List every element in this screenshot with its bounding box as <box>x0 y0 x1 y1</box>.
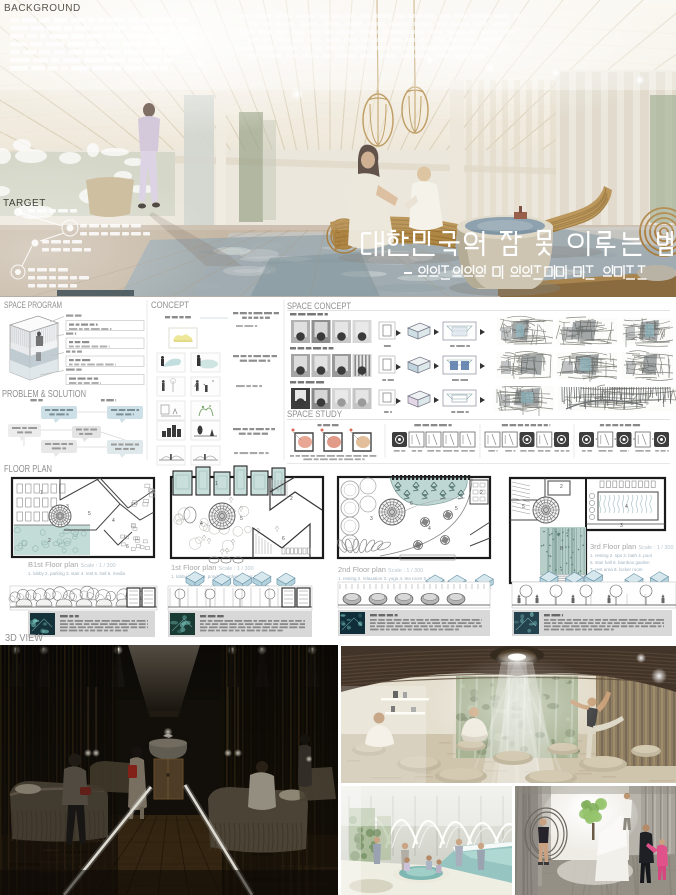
svg-text:1: 1 <box>215 481 218 487</box>
svg-text:3: 3 <box>620 523 623 529</box>
svg-text:6: 6 <box>560 546 563 552</box>
svg-text:5. stair hall 6. bamboo garde: 5. stair hall 6. bamboo garden <box>590 560 650 565</box>
svg-text:6: 6 <box>410 501 413 507</box>
svg-text:4: 4 <box>200 521 203 527</box>
svg-text:3: 3 <box>66 504 69 510</box>
svg-text:2: 2 <box>290 496 293 502</box>
svg-text:4: 4 <box>625 504 628 510</box>
svg-text:7. rest area 8. locker room: 7. rest area 8. locker room <box>590 567 643 572</box>
svg-text:4: 4 <box>112 518 115 524</box>
svg-text:3: 3 <box>370 516 373 522</box>
svg-text:5: 5 <box>522 504 525 510</box>
svg-text:SPACE PROGRAM: SPACE PROGRAM <box>4 300 62 311</box>
svg-text:5: 5 <box>88 511 91 517</box>
svg-text:1. resting 2. spa 3. bath 4: 1. resting 2. spa 3. bath 4. pool <box>590 553 652 558</box>
svg-text:4: 4 <box>428 526 431 532</box>
svg-text:1. lobby 2. parking 3. stair: 1. lobby 2. parking 3. stair 4. rest 5. … <box>28 571 126 576</box>
svg-text:5: 5 <box>240 516 243 522</box>
svg-text:PROBLEM & SOLUTION: PROBLEM & SOLUTION <box>2 388 86 400</box>
svg-text:2: 2 <box>560 484 563 490</box>
svg-text:FLOOR PLAN: FLOOR PLAN <box>4 464 52 475</box>
svg-text:3D VIEW: 3D VIEW <box>5 633 44 644</box>
svg-text:6: 6 <box>282 536 285 542</box>
svg-text:SPACE STUDY: SPACE STUDY <box>287 409 343 420</box>
svg-text:2: 2 <box>480 490 483 496</box>
svg-text:6: 6 <box>126 544 129 550</box>
svg-text:5: 5 <box>455 506 458 512</box>
svg-text:CONCEPT: CONCEPT <box>151 300 189 311</box>
svg-text:2: 2 <box>48 538 51 544</box>
svg-text:1: 1 <box>40 490 43 496</box>
